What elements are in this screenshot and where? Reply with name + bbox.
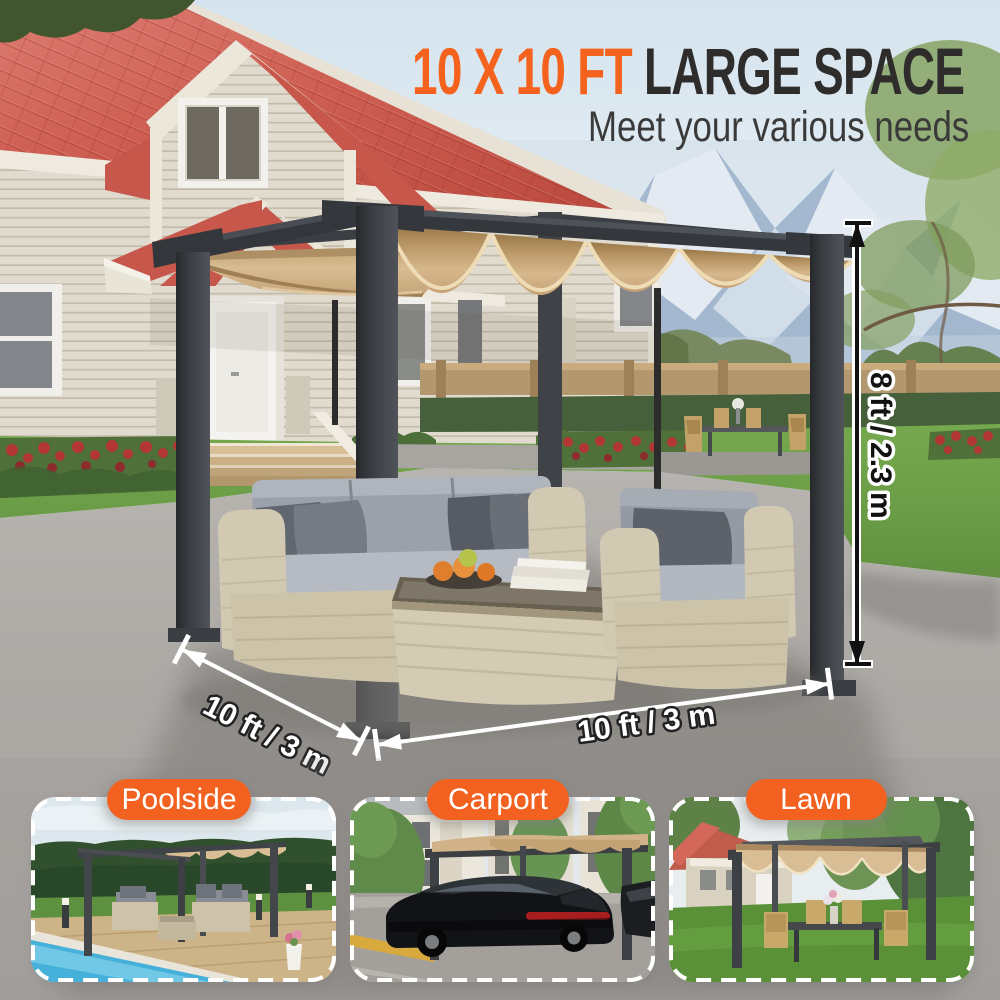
svg-text:8 ft / 2.3 m: 8 ft / 2.3 m xyxy=(864,372,897,519)
svg-text:10 X 10 FT LARGE SPACE: 10 X 10 FT LARGE SPACE xyxy=(412,36,964,109)
svg-text:Poolside: Poolside xyxy=(121,783,236,816)
svg-text:Lawn: Lawn xyxy=(780,783,852,816)
svg-text:Meet your various needs: Meet your various needs xyxy=(588,104,969,151)
svg-text:Carport: Carport xyxy=(448,783,549,816)
